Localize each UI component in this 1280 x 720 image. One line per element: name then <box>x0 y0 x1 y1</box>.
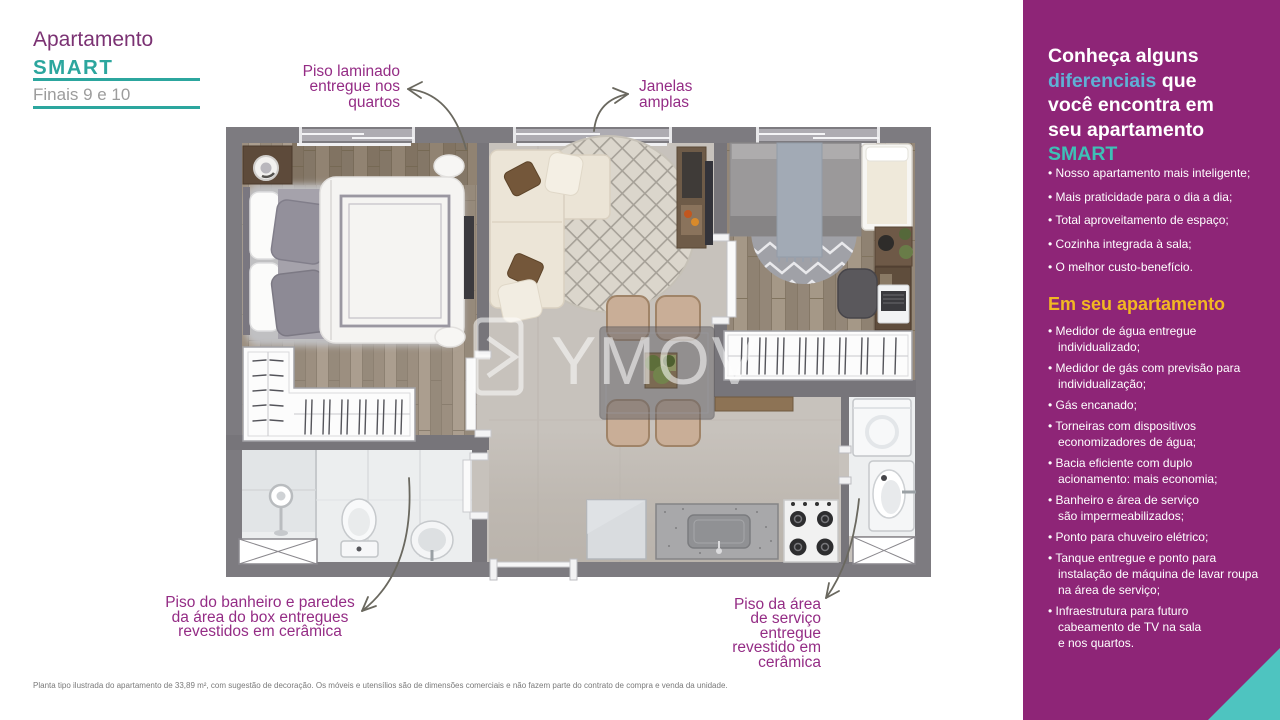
svg-text:YMOV: YMOV <box>551 323 759 399</box>
